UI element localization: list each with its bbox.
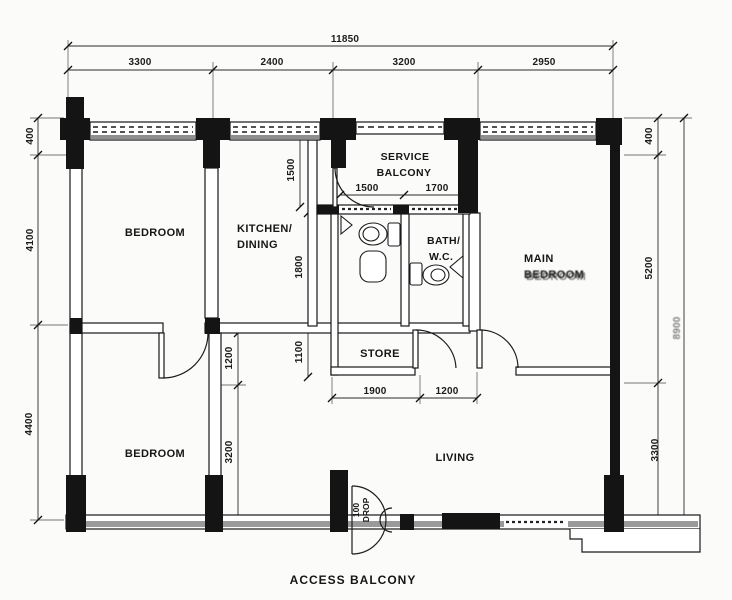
window-kitchen-sill [231,135,319,139]
dim-right-total: 8900 [672,316,683,339]
wall-mainbedroom-south [516,367,616,375]
dim-balcony-1500: 1500 [355,183,378,194]
toilet-cistern-bath [410,263,422,285]
room-label-main-2-ghost: BEDROOM [526,271,586,283]
note-drop-value: 100 [351,503,361,517]
junction-bedroom1-south [205,318,220,334]
pier-t1-stem [203,140,220,168]
dimension-ticks [34,42,688,534]
room-label-access-balcony: ACCESS BALCONY [290,573,417,587]
room-label-kitchen-2: DINING [237,239,278,251]
dim-right-400: 400 [644,127,655,145]
dim-right-5200: 5200 [644,256,655,279]
wall-bath-divider [401,212,409,326]
bottom-wall-infill [68,521,698,527]
wall-mainbedroom-west [469,213,480,331]
dim-right-3300: 3300 [650,438,661,461]
room-label-main-1: MAIN [524,253,554,265]
pier-top-left-head [60,118,90,140]
pier-entrance-right [400,514,414,530]
window-bedroom1-sill [91,135,195,139]
door-symbol-wc [341,216,352,234]
dim-balcony-1700: 1700 [425,183,448,194]
pier-t2-head [320,118,356,140]
dim-top-3200: 3200 [392,57,415,68]
balcony-parapet-frame [356,122,444,134]
dim-bedroom2-door-offset: 1200 [224,346,235,369]
pier-t2-stem [331,140,346,168]
pier-bottom-left [66,475,86,532]
room-label-service-2: BALCONY [377,167,432,179]
toilet-pan-bath-inner [431,269,445,281]
wall-balcony-south-black2 [393,205,409,214]
structural-piers [66,145,624,532]
wall-bedroom1-kitchen [205,168,218,318]
dim-left-400: 400 [25,127,36,145]
pier-t1-head [196,118,230,140]
dim-top-2950: 2950 [532,57,555,68]
room-label-bath-1: BATH/ [427,235,460,247]
wall-kitchen-east [308,140,317,326]
basin-wc [360,251,386,282]
room-label-kitchen-1: KITCHEN/ [237,223,292,235]
pier-t3-stem [458,140,478,213]
dim-top-2400: 2400 [260,57,283,68]
dim-store-1900: 1900 [363,386,386,397]
pier-bedroom2-corner [205,475,223,532]
toilet-pan-wc-inner [363,227,379,241]
door-swing-store [416,330,456,368]
dim-bath-depth: 1800 [294,255,305,278]
dim-top-3300: 3300 [128,57,151,68]
dim-overall-width: 11850 [331,34,359,45]
room-label-bedroom-bottom: BEDROOM [125,448,185,460]
dim-bedroom2-wall: 3200 [224,440,235,463]
top-facade [60,97,622,213]
dim-left-4100: 4100 [25,228,36,251]
room-label-service-1: SERVICE [381,151,430,163]
wall-right-outer [610,145,620,475]
note-drop-word: DROP [361,497,371,522]
wall-living-south-black [442,513,500,529]
door-leaf-bedroom2 [159,333,164,378]
toilet-cistern-wc [388,223,400,246]
pier-entrance-left [330,470,348,532]
room-label-bedroom-top: BEDROOM [125,227,185,239]
pier-top-right-corner [596,118,622,145]
junction-left-mid [70,318,82,334]
door-swing-mainbedroom [480,330,518,368]
room-label-living: LIVING [435,452,474,464]
pier-bottom-right [604,475,624,532]
floor-plan-page: BEDROOM KITCHEN/ DINING SERVICE BALCONY … [0,0,732,600]
door-swing-bedroom2 [163,333,208,378]
room-label-bath-2: W.C. [429,251,453,263]
room-label-store: STORE [360,348,400,360]
balcony-step-detail [570,529,700,552]
dim-store-1200: 1200 [435,386,458,397]
wall-bedroom2-east [209,333,221,476]
dim-store-depth: 1100 [294,341,305,364]
pier-t3-head [444,118,480,140]
wall-store-south [331,367,415,375]
wall-bedroom2-north-left [70,323,163,333]
door-leaf-mainbedroom [477,330,482,368]
dim-balcony-depth: 1500 [286,158,297,181]
floor-plan-drawing: BEDROOM KITCHEN/ DINING SERVICE BALCONY … [0,0,732,600]
interior-walls [70,140,616,476]
wall-bath-west [331,212,338,375]
dim-left-4400: 4400 [24,412,35,435]
door-leaf-store [413,330,418,368]
window-mainbedroom-sill [481,135,595,139]
